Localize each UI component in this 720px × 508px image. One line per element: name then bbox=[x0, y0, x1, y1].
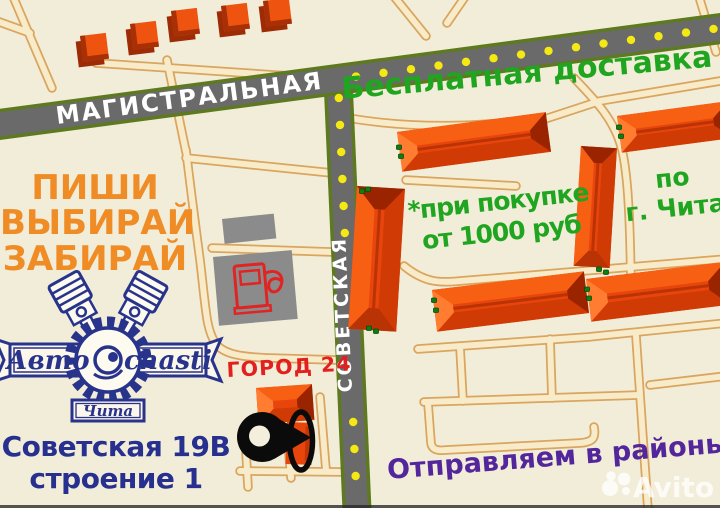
house bbox=[125, 21, 160, 56]
logo-city-text: Чита bbox=[83, 402, 133, 420]
company-logo: Авто chasti Чита bbox=[0, 270, 221, 421]
avito-logo-dots bbox=[606, 471, 616, 481]
logo-city-banner: Чита bbox=[72, 400, 144, 421]
building-b bbox=[617, 101, 720, 152]
slogan-block: ПИШИ ВЫБИРАЙ ЗАБИРАЙ bbox=[0, 171, 190, 277]
house bbox=[166, 8, 201, 43]
address-line-1: Советская 19В bbox=[0, 431, 232, 463]
house bbox=[258, 0, 293, 32]
map-flyer: МАГИСТРАЛЬНАЯ СОВЕТСКАЯ bbox=[0, 0, 720, 508]
building-c bbox=[348, 186, 405, 332]
houses-row bbox=[75, 0, 293, 67]
gray-building-small bbox=[222, 214, 276, 244]
avito-watermark: Avito bbox=[602, 471, 714, 504]
slogan-line-1: ПИШИ bbox=[0, 171, 190, 206]
logo-text-left: Авто bbox=[4, 346, 89, 376]
gas-station-building bbox=[213, 250, 298, 326]
avito-brand-text: Avito bbox=[633, 471, 714, 504]
road-label-magistralnaya: МАГИСТРАЛЬНАЯ bbox=[54, 67, 325, 130]
logo-text-right: chasti bbox=[124, 346, 212, 376]
region-text: по г. Чита bbox=[618, 158, 720, 229]
address-line-2: строение 1 bbox=[0, 463, 232, 495]
address-block: Советская 19В строение 1 bbox=[0, 431, 232, 494]
slogan-line-2: ВЫБИРАЙ bbox=[0, 206, 190, 241]
slogan-line-3: ЗАБИРАЙ bbox=[0, 242, 190, 277]
house bbox=[216, 3, 251, 38]
